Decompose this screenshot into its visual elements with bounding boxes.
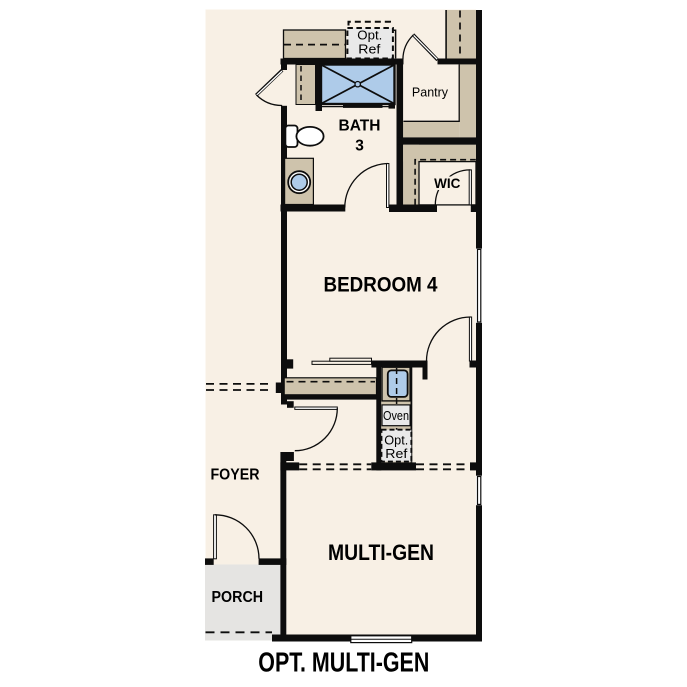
svg-text:PORCH: PORCH: [212, 589, 264, 606]
svg-text:FOYER: FOYER: [211, 466, 260, 483]
svg-text:3: 3: [355, 138, 364, 155]
svg-text:OPT. MULTI-GEN: OPT. MULTI-GEN: [258, 646, 429, 677]
svg-text:WIC: WIC: [434, 176, 460, 191]
svg-text:MULTI-GEN: MULTI-GEN: [328, 540, 434, 565]
svg-text:Opt.: Opt.: [384, 433, 408, 447]
svg-text:Oven: Oven: [383, 409, 409, 423]
svg-text:Ref: Ref: [385, 447, 408, 461]
svg-text:BEDROOM 4: BEDROOM 4: [324, 273, 438, 297]
svg-text:Ref: Ref: [358, 43, 381, 57]
svg-text:BATH: BATH: [339, 118, 381, 135]
svg-text:Opt.: Opt.: [357, 29, 382, 43]
svg-text:Pantry: Pantry: [412, 86, 449, 100]
